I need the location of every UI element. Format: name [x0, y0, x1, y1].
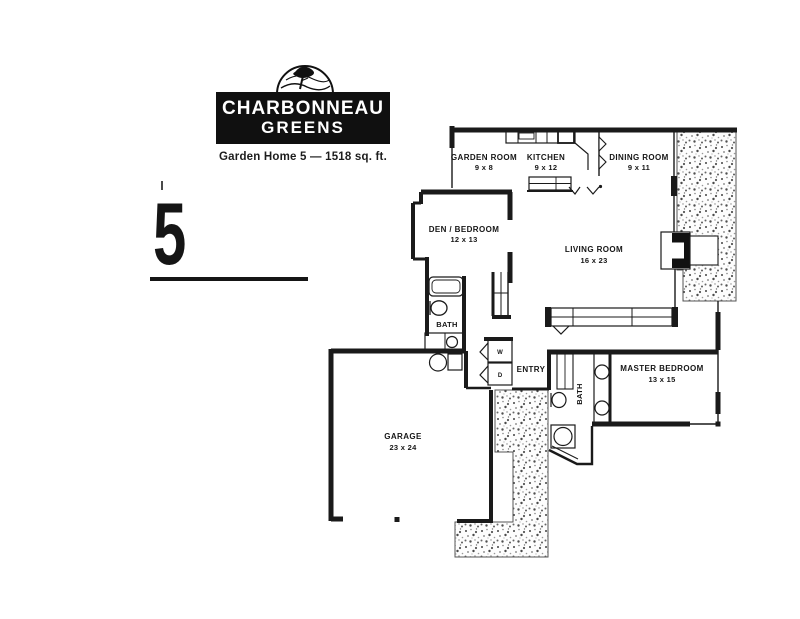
living-room-dims: 16 x 23: [580, 256, 607, 265]
closet-door-mark: [480, 366, 488, 383]
bathtub: [432, 280, 460, 293]
den-bedroom-label: DEN / BEDROOM: [429, 225, 500, 234]
den-bedroom-dims: 12 x 13: [450, 235, 477, 244]
patio-stipple-area: [677, 131, 736, 301]
kitchen-dims: 9 x 12: [535, 163, 558, 172]
refrigerator: [558, 131, 574, 143]
entry-walkway-stipple-area: [455, 390, 548, 557]
floor-plan-drawing: GARDEN ROOM 9 x 8 KITCHEN 9 x 12 DINING …: [0, 0, 800, 619]
entry-area: [480, 339, 549, 389]
master-bath: [549, 352, 610, 464]
dining-room-dims: 9 x 11: [628, 163, 650, 172]
washer-letter: W: [497, 350, 503, 356]
pantry-door-icon: [599, 137, 606, 151]
closet-door-mark: [480, 343, 488, 360]
scanned-floor-plan-page: CHARBONNEAU GREENS Garden Home 5 — 1518 …: [0, 0, 800, 619]
toilet: [552, 393, 566, 408]
garden-room-dims: 9 x 8: [475, 163, 493, 172]
dryer-letter: D: [498, 373, 503, 379]
kitchen-label: KITCHEN: [527, 153, 565, 162]
garden-room-label: GARDEN ROOM: [451, 153, 517, 162]
vanity-sink: [595, 401, 609, 415]
master-bath-label: BATH: [575, 383, 584, 404]
door-swing-mark: [553, 326, 569, 334]
bath-label: BATH: [436, 320, 457, 329]
utility-sink: [447, 337, 458, 348]
living-room-window-unit: [545, 307, 678, 334]
garage-dims: 23 x 24: [389, 443, 417, 452]
dining-room-label: DINING ROOM: [609, 153, 669, 162]
master-bedroom-dims: 13 x 15: [648, 375, 675, 384]
vanity-sink: [595, 365, 609, 379]
master-bedroom-label: MASTER BEDROOM: [620, 364, 703, 373]
fireplace: [661, 232, 718, 269]
water-heater: [430, 354, 447, 371]
pantry-door-icon: [599, 155, 606, 169]
hall-closet: [492, 272, 511, 317]
toilet: [431, 301, 447, 315]
garage-label: GARAGE: [384, 432, 422, 441]
laundry-tub: [448, 354, 462, 370]
entry-label: ENTRY: [517, 365, 546, 374]
living-room-label: LIVING ROOM: [565, 245, 623, 254]
door-swing-mark: [587, 187, 599, 194]
kitchen-sink: [519, 133, 534, 139]
